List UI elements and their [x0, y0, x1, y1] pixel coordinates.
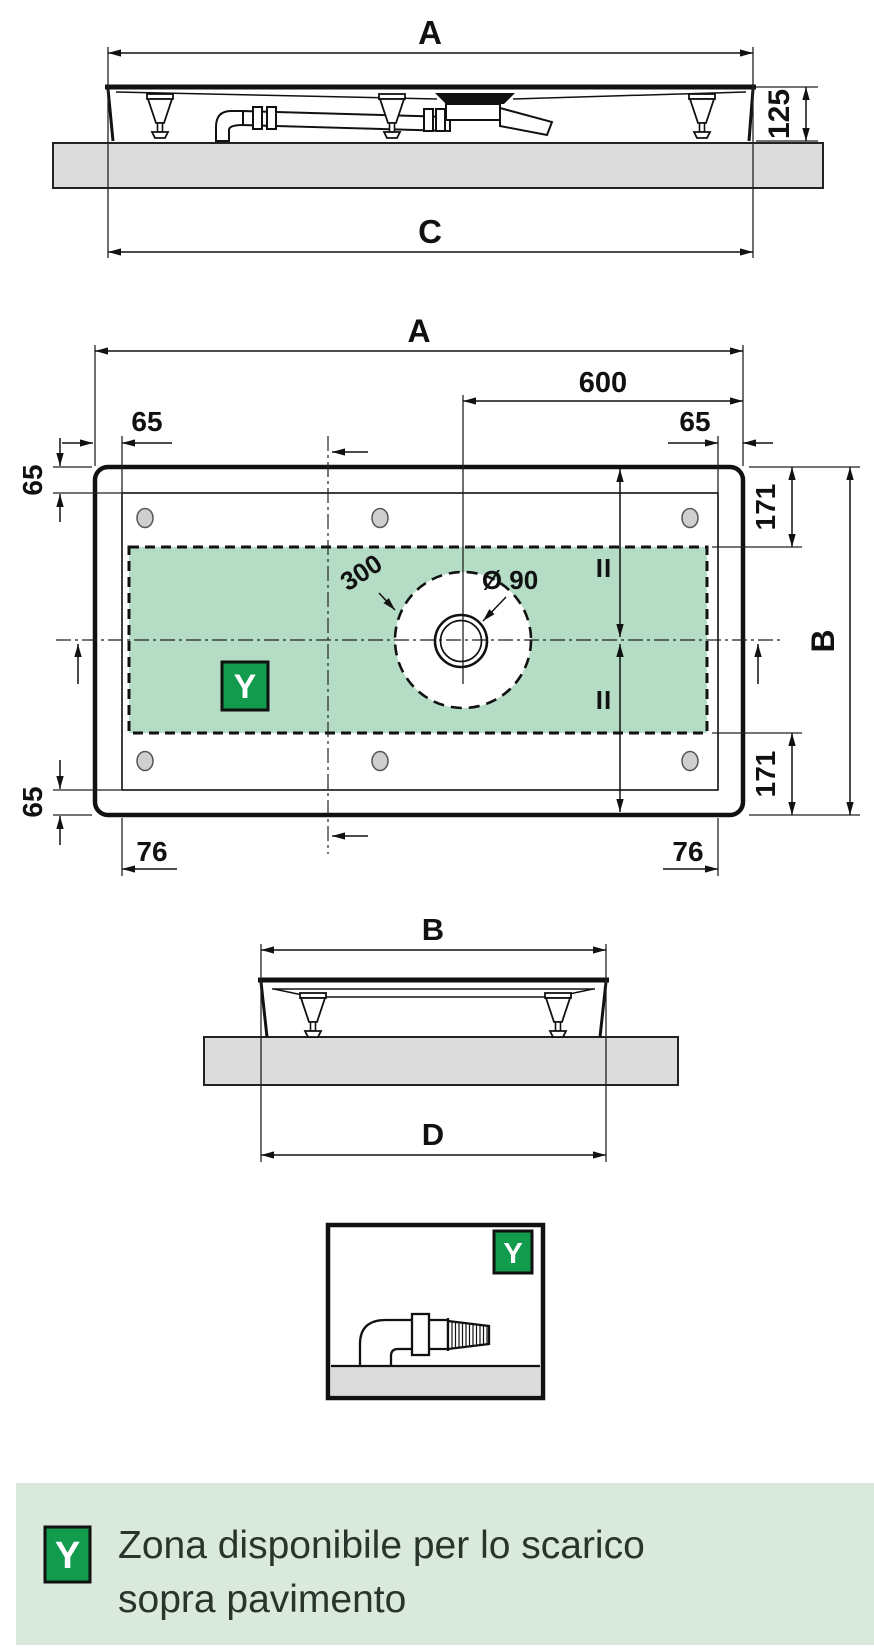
equal-mark-lower: II — [596, 685, 612, 715]
equal-mark-upper: II — [596, 553, 612, 583]
zone-symbol-badge-plan: Y — [222, 662, 268, 710]
dim-label-65-left-lower: 65 — [17, 786, 48, 817]
dim-label-a-side: A — [418, 14, 442, 51]
dim-label-171-top: 171 — [750, 484, 781, 531]
dim-label-d-end: D — [422, 1117, 444, 1152]
dim-label-65-tr: 65 — [679, 406, 710, 437]
detail-floor-band — [331, 1366, 540, 1395]
floor-slab-side — [53, 143, 823, 188]
dim-label-125: 125 — [763, 89, 796, 139]
dim-label-65-tl: 65 — [131, 406, 162, 437]
dim-label-a-plan: A — [407, 313, 430, 349]
drain-flange-side — [435, 93, 515, 104]
floor-slab-end — [204, 1037, 678, 1085]
dim-label-d90: Ø 90 — [482, 565, 538, 595]
dim-label-b-end: B — [422, 912, 444, 947]
drain-detail-box: Y — [328, 1225, 543, 1398]
y-badge-label-plan: Y — [234, 668, 257, 706]
legend-text-line2: sopra pavimento — [118, 1578, 406, 1621]
dim-label-65-left-upper: 65 — [17, 464, 48, 495]
dim-label-600: 600 — [579, 367, 627, 399]
dim-label-76-right: 76 — [672, 836, 703, 867]
legend-text-line1: Zona disponibile per lo scarico — [118, 1524, 645, 1567]
zone-symbol-badge-legend: Y — [45, 1527, 90, 1582]
technical-drawing-page: A 125 C — [0, 0, 874, 1650]
dim-label-76-left: 76 — [136, 836, 167, 867]
y-badge-label-legend: Y — [55, 1535, 80, 1577]
dim-label-b-plan: B — [805, 629, 841, 652]
dim-label-171-bottom: 171 — [750, 751, 781, 798]
zone-symbol-badge-detail: Y — [494, 1231, 532, 1273]
dim-label-c-side: C — [418, 213, 442, 250]
legend: Y Zona disponibile per lo scarico sopra … — [16, 1483, 874, 1645]
drain-trap-side — [446, 104, 500, 120]
shower-tray-installation-diagram: A 125 C — [0, 0, 874, 1650]
y-badge-label-detail: Y — [503, 1238, 522, 1270]
